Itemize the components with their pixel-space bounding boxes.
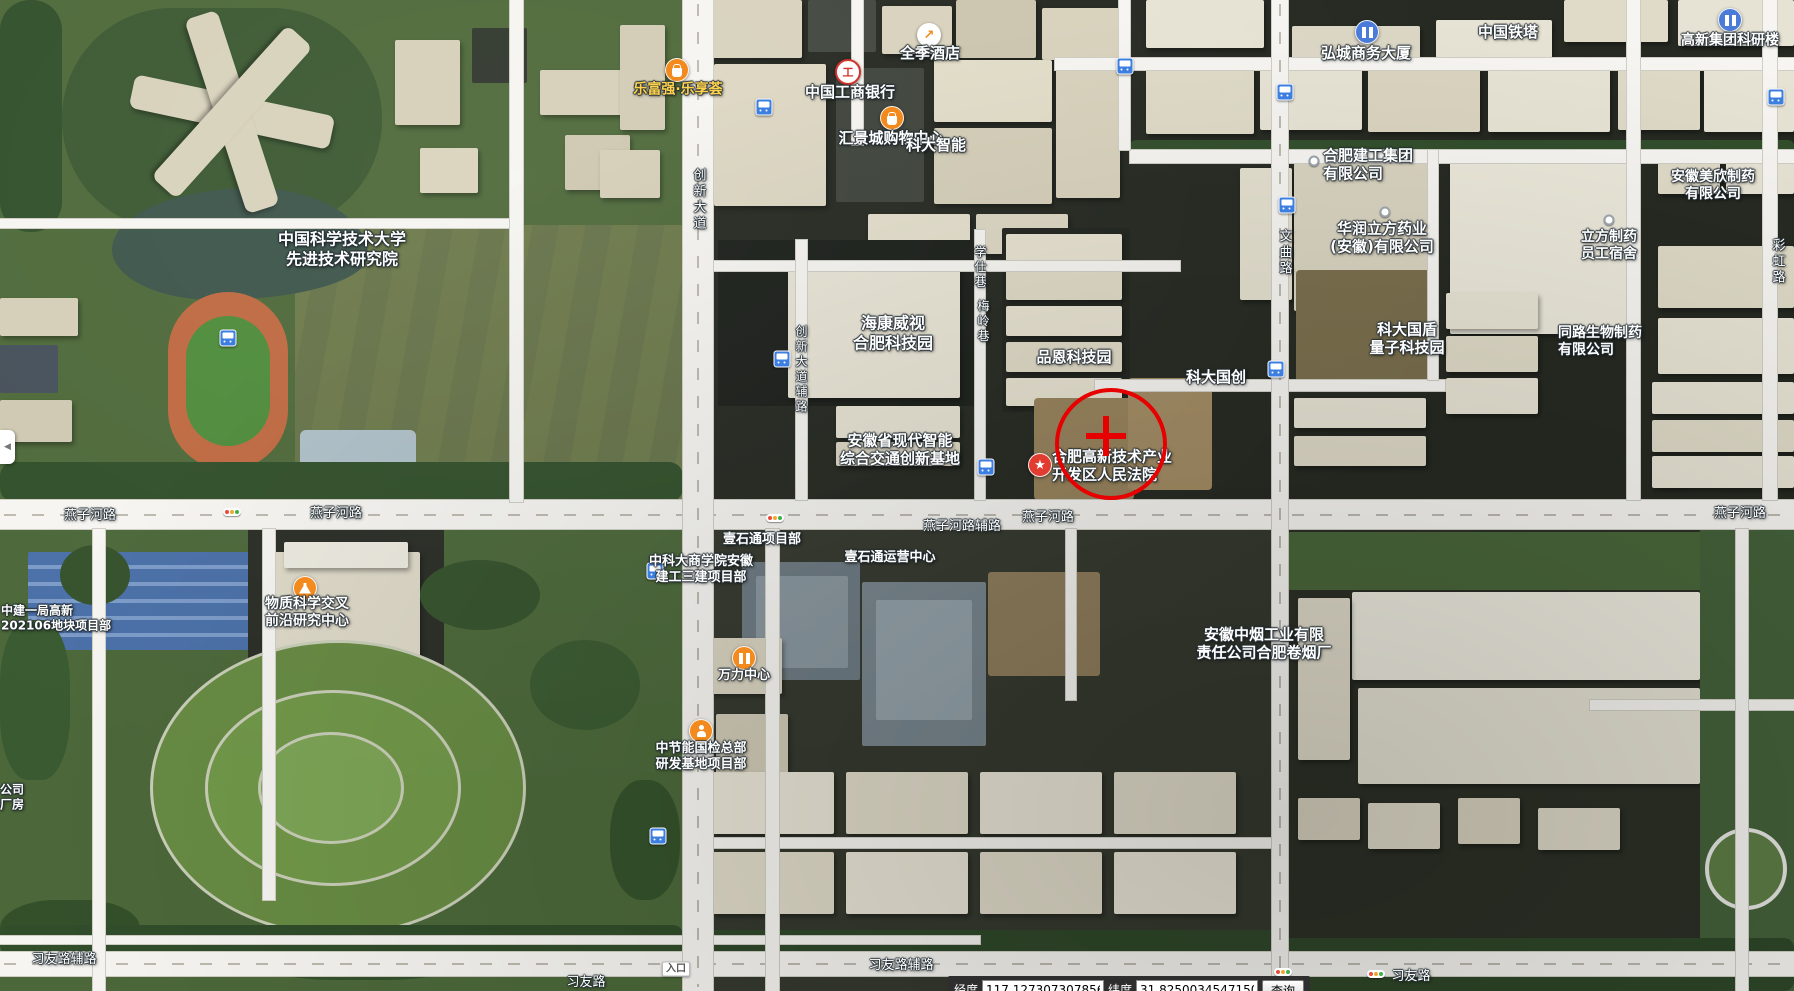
- road-meiling-lane: 梅岭巷: [977, 300, 989, 345]
- poi-gaoxin-research-building[interactable]: 高新集团科研楼: [1681, 32, 1779, 49]
- bus-stop-icon[interactable]: [1268, 361, 1285, 378]
- map-building: [980, 772, 1102, 834]
- map-building: [540, 70, 625, 115]
- coord-search-button[interactable]: 查询: [1262, 980, 1304, 991]
- map-building: [1298, 598, 1350, 760]
- bus-stop-icon[interactable]: [978, 459, 995, 476]
- road: [93, 529, 105, 991]
- poi-dot-icon: [1309, 156, 1320, 167]
- bag-glyph: [672, 68, 682, 77]
- poi-ustc-advanced-institute[interactable]: 中国科学技术大学先进技术研究院: [278, 229, 406, 268]
- longitude-label: 经度: [954, 980, 978, 991]
- bus-stop-icon[interactable]: [1117, 58, 1134, 75]
- road: [1590, 700, 1794, 710]
- map-terrain: [420, 560, 540, 630]
- map-building: [1006, 234, 1122, 264]
- person-glyph: [695, 725, 707, 737]
- satellite-map[interactable]: ◀ 经度 纬度 查询 中国科学技术大学先进技术研究院乐富强·乐享荟全季酒店中国工…: [0, 0, 1794, 991]
- road: [1055, 58, 1794, 70]
- bars-glyph: [1362, 27, 1373, 38]
- map-building: [620, 25, 665, 130]
- map-building: [1564, 0, 1668, 42]
- map-building: [1446, 378, 1538, 414]
- map-building: [1294, 398, 1426, 428]
- road-chuangxin-avenue: 创新大道: [692, 168, 705, 232]
- poi-icbc-bank[interactable]: 中国工商银行: [805, 83, 895, 101]
- flask-glyph: [299, 583, 311, 594]
- bus-stop-icon[interactable]: [774, 351, 791, 368]
- coordinate-bar: 经度 纬度 查询: [948, 976, 1310, 991]
- map-terrain: [0, 0, 62, 232]
- road-yanzihe-4: 燕子河路: [1714, 506, 1766, 522]
- map-building: [1458, 798, 1520, 844]
- target-annotation-circle: [1055, 388, 1167, 500]
- bus-stop-icon[interactable]: [756, 99, 773, 116]
- poi-pinen-tech-park[interactable]: 品恩科技园: [1036, 348, 1111, 366]
- map-building: [846, 852, 968, 914]
- road: [263, 529, 275, 900]
- poi-yishitong-project[interactable]: 壹石通项目部: [723, 532, 801, 548]
- road: [690, 261, 1180, 271]
- entrance-badge: 入口: [662, 962, 690, 977]
- map-terrain: [610, 780, 680, 900]
- poi-wanli-center[interactable]: 万力中心: [718, 668, 770, 684]
- road: [0, 500, 1794, 529]
- map-terrain: [258, 732, 404, 844]
- bank-poi-icon[interactable]: 工: [835, 59, 861, 85]
- road-xiyou-service-1: 习友路辅路: [31, 952, 96, 968]
- latitude-input[interactable]: [1136, 980, 1258, 991]
- map-building: [1114, 852, 1236, 914]
- target-annotation-cross: [1103, 416, 1109, 456]
- map-building: [1298, 798, 1360, 840]
- poi-lifang-dormitory[interactable]: 立方制药员工宿舍: [1581, 229, 1637, 263]
- road-xiyou-service-2: 习友路辅路: [868, 958, 933, 974]
- poi-dot-icon: [1604, 215, 1615, 226]
- office-poi-icon[interactable]: [1718, 8, 1742, 32]
- road: [1272, 0, 1288, 991]
- map-building: [395, 40, 460, 125]
- poi-huarun-lifang-pharma[interactable]: 华润立方药业(安徽)有限公司: [1330, 220, 1434, 257]
- map-building: [1368, 68, 1480, 132]
- map-terrain: [876, 600, 972, 720]
- road: [0, 936, 980, 944]
- road: [1066, 529, 1076, 700]
- road-yanzihe-service: 燕子河路辅路: [923, 519, 1001, 535]
- traffic-light-icon: [1367, 970, 1385, 978]
- poi-dot-icon: [1380, 207, 1391, 218]
- map-building: [956, 0, 1036, 58]
- road-yanzihe-2: 燕子河路: [310, 506, 362, 522]
- poi-tonglu-bio-pharma[interactable]: 同路生物制药有限公司: [1558, 325, 1642, 359]
- poi-transport-innovation-base[interactable]: 安徽省现代智能综合交通创新基地: [840, 432, 960, 469]
- map-building: [0, 298, 78, 336]
- company-poi-icon[interactable]: [732, 646, 756, 670]
- map-building: [1006, 270, 1122, 300]
- map-building: [1146, 0, 1264, 48]
- map-terrain: [808, 0, 876, 52]
- traffic-light-icon: [1274, 968, 1292, 976]
- poi-hikvision-park[interactable]: 海康威视合肥科技园: [853, 313, 933, 352]
- poi-guodun-quantum-park[interactable]: 科大国盾量子科技园: [1369, 321, 1444, 358]
- panel-collapse-tab[interactable]: ◀: [0, 430, 15, 464]
- poi-anhui-tobacco-factory[interactable]: 安徽中烟工业有限责任公司合肥卷烟厂: [1196, 626, 1331, 663]
- map-terrain: [0, 462, 683, 502]
- road: [766, 529, 779, 991]
- traffic-light-icon: [766, 514, 784, 522]
- bus-stop-icon[interactable]: [1277, 84, 1294, 101]
- poi-keda-intelligence[interactable]: 科大智能: [906, 136, 966, 154]
- poi-zhongjian-project[interactable]: 中建一局高新202106地块项目部: [1, 603, 111, 632]
- map-building: [934, 60, 1052, 122]
- map-building: [1042, 8, 1120, 60]
- road-yanzihe-1: 燕子河路: [64, 508, 116, 524]
- road-xiyou-2: 习友路: [1391, 969, 1430, 985]
- road-wenqu: 文曲路: [1278, 229, 1291, 277]
- map-terrain: [0, 620, 70, 780]
- map-building: [980, 852, 1102, 914]
- latitude-label: 纬度: [1108, 980, 1132, 991]
- poi-lefuqiang-mall[interactable]: 乐富强·乐享荟: [633, 81, 722, 98]
- map-building: [1446, 336, 1538, 372]
- bus-stop-icon[interactable]: [650, 828, 667, 845]
- map-building: [1538, 808, 1620, 850]
- bus-stop-icon[interactable]: [1768, 89, 1785, 106]
- bus-stop-icon[interactable]: [220, 330, 237, 347]
- map-building: [1352, 592, 1700, 680]
- bag-glyph: [887, 116, 897, 125]
- map-building: [1488, 64, 1610, 132]
- poi-hongcheng-tower[interactable]: 弘城商务大厦: [1321, 44, 1411, 62]
- road: [510, 0, 523, 502]
- road-chuangxin-service: 创新大道辅路: [795, 325, 807, 415]
- map-terrain: [988, 572, 1100, 676]
- shop-poi-icon[interactable]: [665, 58, 689, 82]
- road: [1130, 150, 1794, 163]
- road: [1736, 529, 1748, 991]
- poi-ustc-business-school-project[interactable]: 中科大商学院安徽建工三建项目部: [649, 554, 753, 586]
- map-building: [1446, 293, 1538, 329]
- road-yanzihe-3: 燕子河路: [1022, 510, 1074, 526]
- map-building: [1006, 306, 1122, 336]
- road: [683, 0, 713, 991]
- road: [1119, 0, 1130, 150]
- map-building: [1056, 68, 1120, 198]
- map-terrain: [530, 640, 640, 730]
- map-building: [712, 0, 802, 58]
- road: [0, 219, 520, 228]
- map-building: [846, 772, 968, 834]
- court-poi-icon[interactable]: ★: [1028, 453, 1052, 477]
- poi-quanji-hotel[interactable]: 全季酒店: [900, 44, 960, 62]
- poi-yishitong-operations[interactable]: 壹石通运营中心: [844, 550, 935, 566]
- map-terrain: [0, 345, 58, 393]
- poi-hefei-construction-group[interactable]: 合肥建工集团有限公司: [1323, 147, 1413, 184]
- map-building: [1114, 772, 1236, 834]
- map-building: [1294, 436, 1426, 466]
- road-caihong: 彩虹路: [1771, 238, 1784, 286]
- bus-stop-icon[interactable]: [1279, 197, 1296, 214]
- project-poi-icon[interactable]: [689, 719, 713, 743]
- map-building: [1368, 803, 1440, 849]
- map-building: [420, 148, 478, 193]
- collapse-arrow-icon: ◀: [4, 442, 11, 452]
- road-xueshi-lane: 学仕巷: [974, 246, 986, 291]
- map-building: [284, 542, 408, 568]
- bars-glyph: [739, 653, 750, 664]
- road: [1095, 380, 1445, 391]
- poi-material-science-center[interactable]: 物质科学交叉前沿研究中心: [265, 596, 349, 630]
- poi-zhongjieneng-project[interactable]: 中节能国检总部研发基地项目部: [655, 741, 746, 773]
- map-building: [600, 150, 660, 198]
- bars-glyph: [1725, 15, 1736, 26]
- road-xiyou-1: 习友路: [566, 975, 605, 991]
- poi-clipped-company[interactable]: 公司厂房: [0, 782, 24, 811]
- longitude-input[interactable]: [982, 980, 1104, 991]
- office-poi-icon[interactable]: [1355, 20, 1379, 44]
- poi-meixin-pharma[interactable]: 安徽美欣制药有限公司: [1671, 169, 1755, 203]
- mall-poi-icon[interactable]: [880, 106, 904, 130]
- poi-keda-guochuang[interactable]: 科大国创: [1186, 368, 1246, 386]
- poi-china-tower[interactable]: 中国铁塔: [1478, 23, 1538, 41]
- traffic-light-icon: [223, 508, 241, 516]
